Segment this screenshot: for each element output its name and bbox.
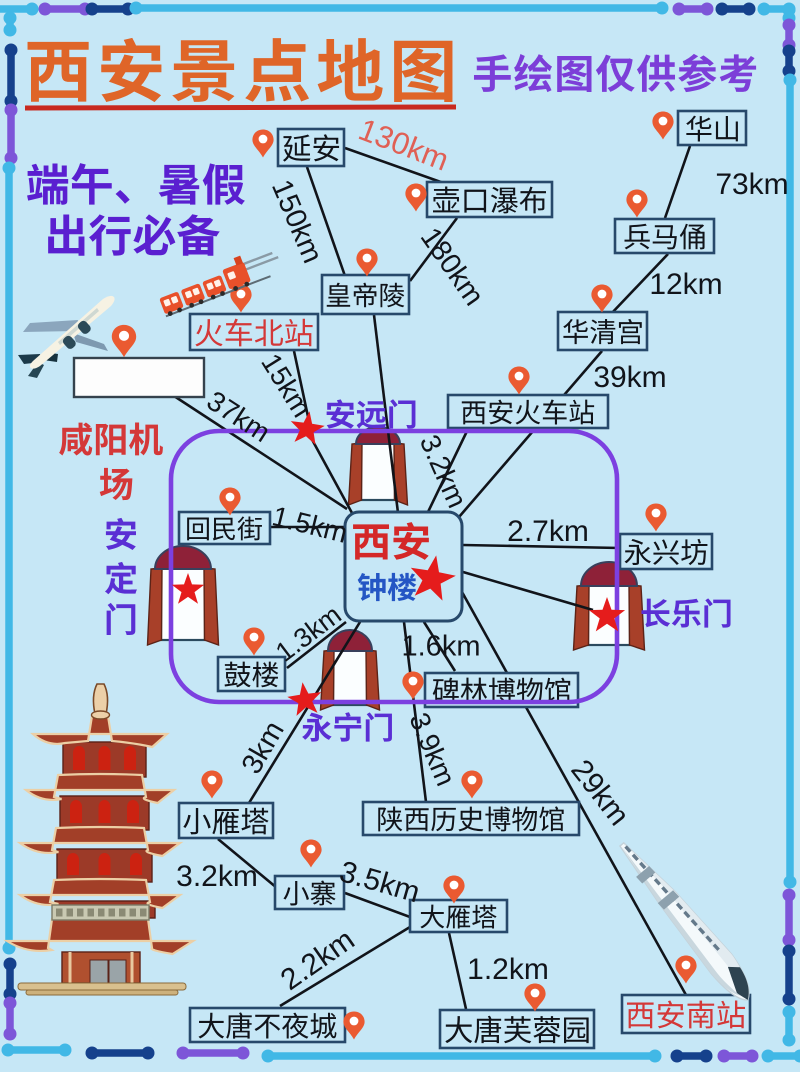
svg-text:39km: 39km	[593, 361, 666, 394]
svg-text:3.5km: 3.5km	[336, 855, 424, 909]
svg-text:1.2km: 1.2km	[467, 953, 549, 986]
svg-text:3.2km: 3.2km	[414, 430, 473, 512]
svg-text:3.9km: 3.9km	[403, 708, 461, 790]
svg-text:150km: 150km	[265, 175, 328, 268]
svg-text:1.5km: 1.5km	[269, 500, 350, 549]
svg-text:2.2km: 2.2km	[275, 923, 361, 997]
svg-text:73km: 73km	[715, 168, 788, 201]
svg-text:180km: 180km	[414, 222, 490, 312]
svg-text:15km: 15km	[255, 348, 318, 422]
svg-text:2.7km: 2.7km	[507, 515, 589, 548]
svg-text:12km: 12km	[649, 268, 722, 301]
svg-text:3.2km: 3.2km	[176, 860, 258, 893]
svg-text:1.6km: 1.6km	[402, 630, 481, 662]
